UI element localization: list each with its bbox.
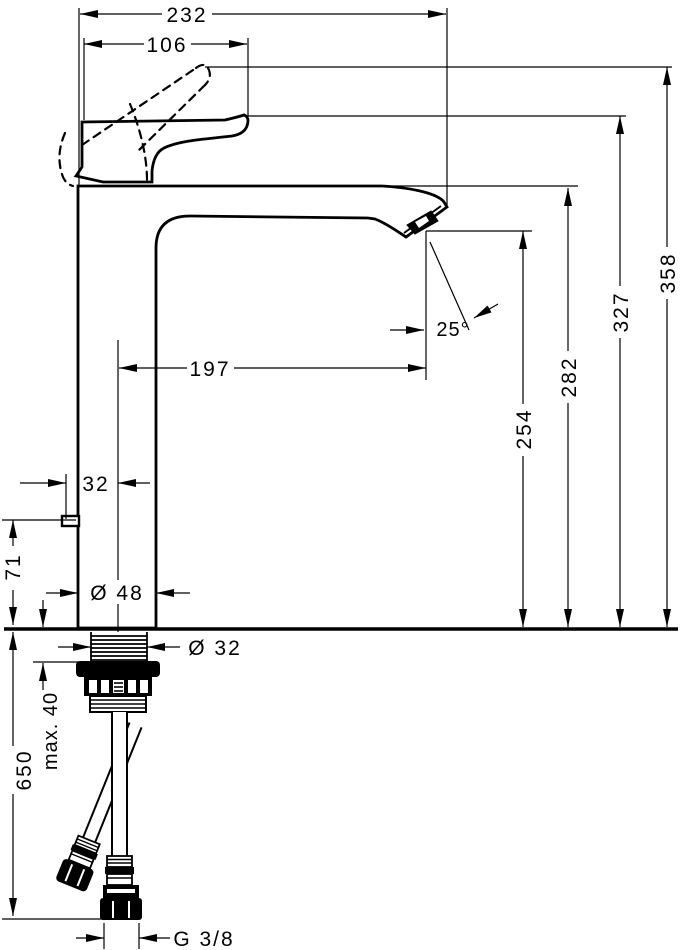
underdeck-assembly xyxy=(55,632,160,920)
faucet-body-spout xyxy=(78,186,447,628)
dim-shank-diameter-label: Ø 32 xyxy=(188,637,242,660)
dim-outlet-height-label: 254 xyxy=(513,408,536,449)
dim-hose-length-label: 650 xyxy=(13,749,36,790)
mounting-nut xyxy=(84,677,152,696)
lower-collar xyxy=(90,696,146,712)
dim-handle-raised-height-label: 358 xyxy=(657,252,680,293)
dim-spout-reach-label: 197 xyxy=(189,358,230,381)
dim-thread-label: G 3/8 xyxy=(173,928,234,950)
dim-angle-lines xyxy=(390,242,498,330)
dim-handle-height-label: 327 xyxy=(610,291,633,332)
dim-overall-width-label: 232 xyxy=(166,4,207,27)
dim-rod-height-label: 71 xyxy=(2,553,25,580)
pull-rod-knob xyxy=(62,516,79,526)
dim-spout-angle-label: 25° xyxy=(436,319,469,341)
dim-handle-reach-label: 106 xyxy=(146,34,187,57)
mounting-flange xyxy=(76,661,160,677)
hose-end-nut xyxy=(100,898,142,920)
handle-lever xyxy=(76,115,248,182)
supply-hose-diagonal xyxy=(55,719,151,893)
technical-drawing-sheet: 232 106 197 25° 32 Ø 48 254 282 327 358 … xyxy=(0,0,681,950)
faucet-dimension-drawing: 232 106 197 25° 32 Ø 48 254 282 327 358 … xyxy=(0,0,681,950)
dim-rod-offset-label: 32 xyxy=(82,473,109,496)
dim-spout-top-height-label: 282 xyxy=(558,356,581,397)
threaded-shank xyxy=(91,632,147,662)
dim-body-diameter-label: Ø 48 xyxy=(90,582,144,605)
dim-max-mounting-label: max. 40 xyxy=(40,692,62,770)
